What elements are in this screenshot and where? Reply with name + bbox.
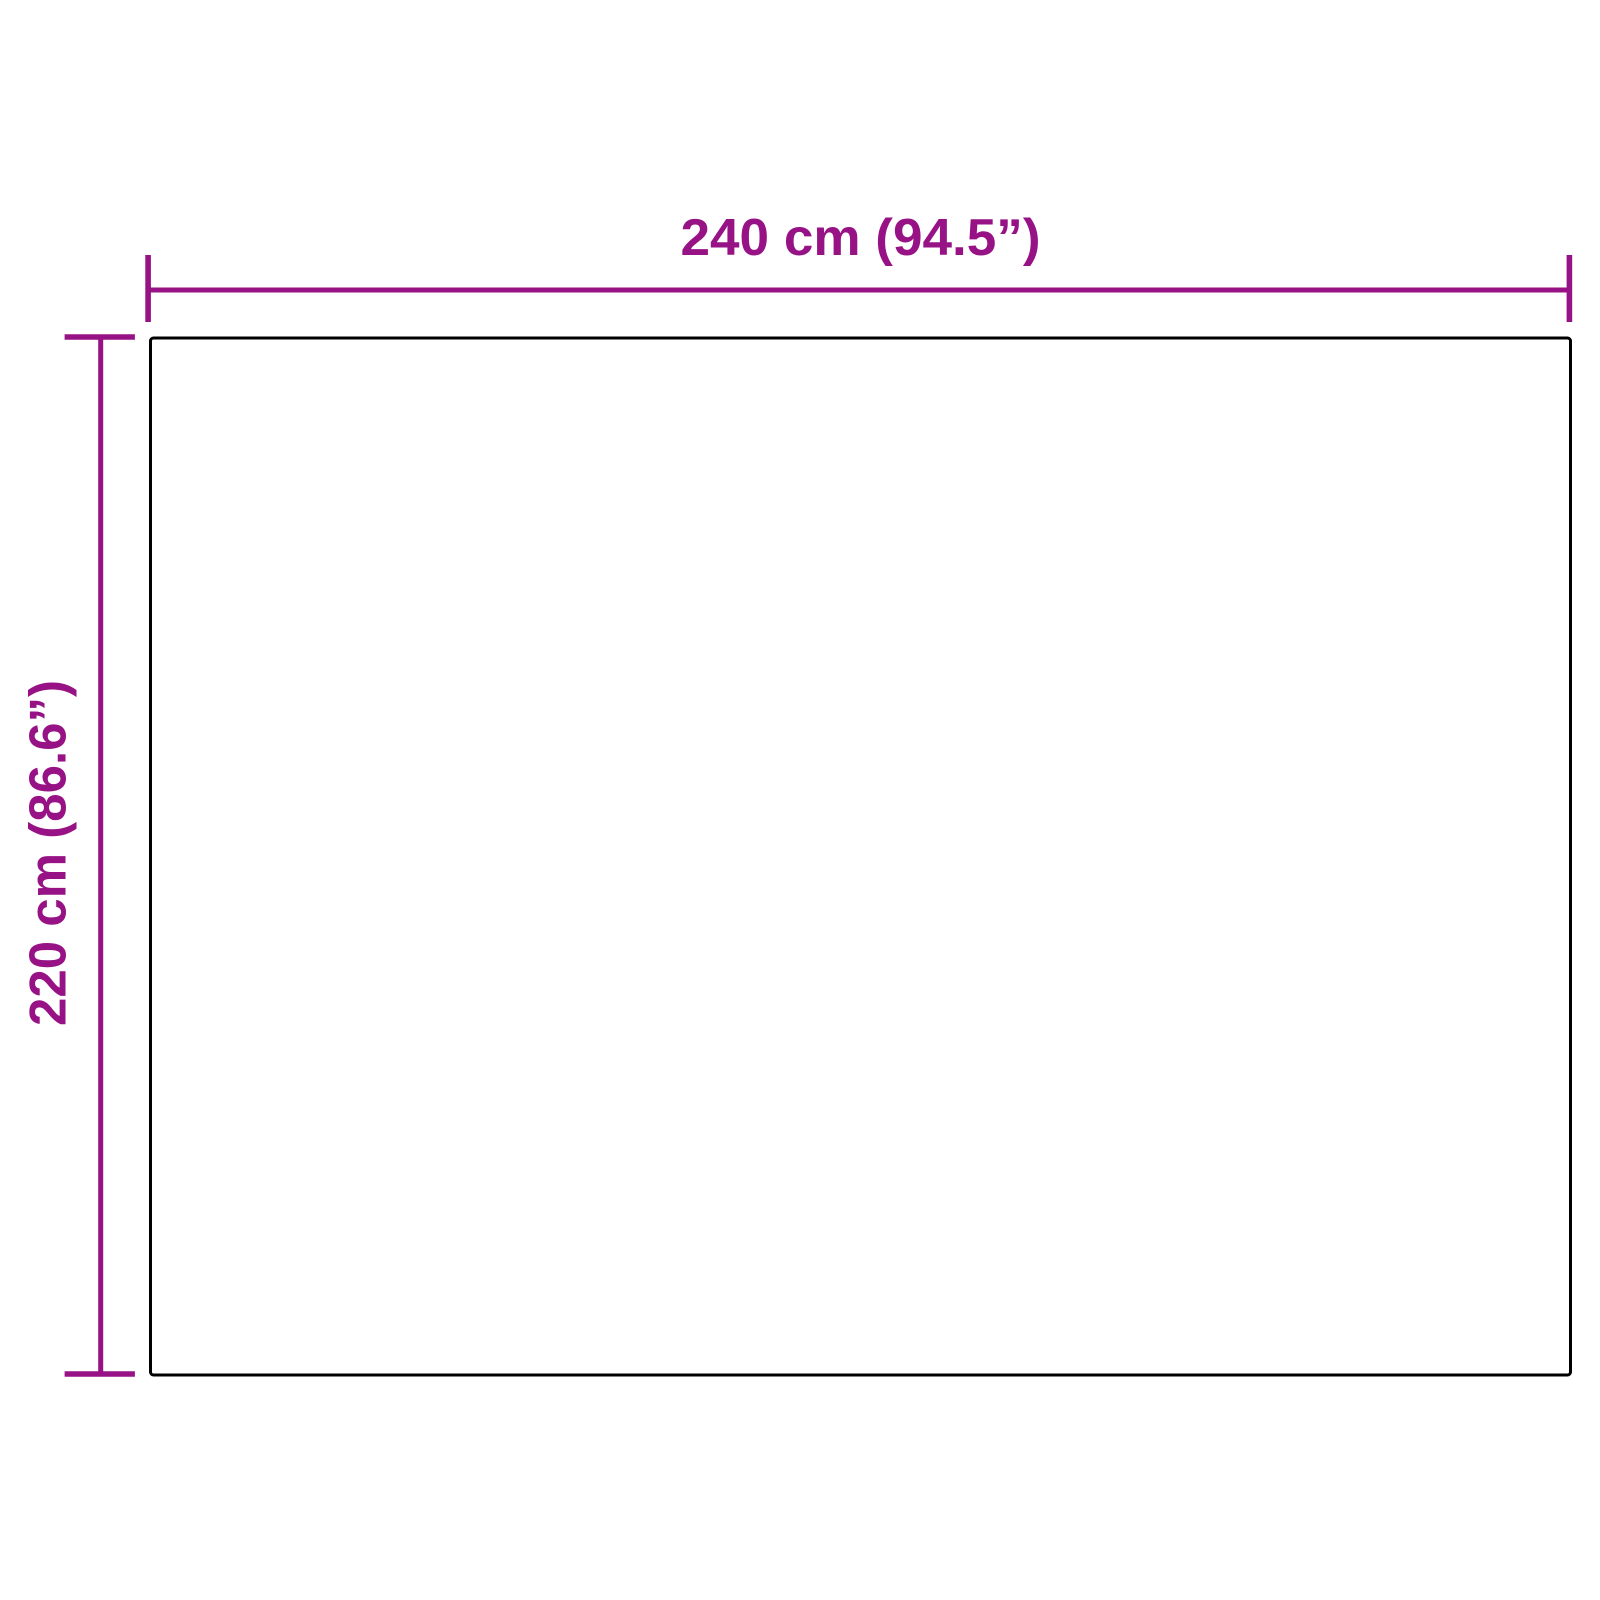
svg-text:240 cm (94.5”): 240 cm (94.5”) <box>681 209 1041 267</box>
svg-text:220 cm (86.6”): 220 cm (86.6”) <box>20 680 78 1026</box>
